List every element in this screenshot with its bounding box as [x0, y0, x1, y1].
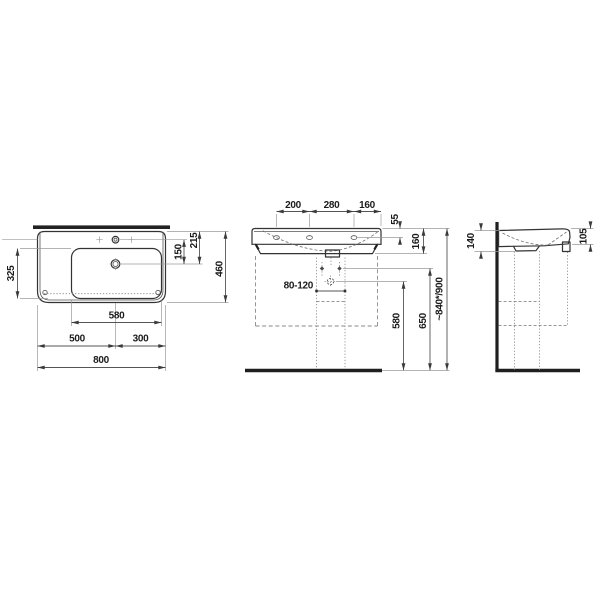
tap-hole [112, 236, 119, 243]
dim-label-200: 200 [285, 200, 302, 211]
dim-label-460: 460 [215, 260, 226, 277]
front-apron-corner-accents [256, 245, 377, 250]
dim-label-325: 325 [6, 265, 17, 282]
dim-fixing-holes-height: 650 [343, 269, 433, 371]
dim-label-650: 650 [418, 312, 429, 329]
basin-inner-lip [40, 232, 163, 300]
fixing-hole-right [156, 290, 160, 294]
basin-outer-rim [38, 232, 166, 303]
dim-label-215: 215 [189, 232, 200, 249]
bowl-outline [72, 249, 162, 299]
dim-label-500: 500 [69, 334, 86, 345]
side-bowl-curve [503, 233, 549, 245]
drain-crosshair-ticks [110, 258, 122, 270]
front-apron [256, 244, 378, 253]
front-rim-band [252, 229, 381, 245]
tap-hole-center [114, 238, 117, 241]
washbasin-technical-drawing: 325 150 215 460 580 [0, 0, 600, 600]
front-bowl-curve [263, 231, 379, 251]
dim-label-105: 105 [579, 228, 590, 245]
drain-inner [113, 261, 118, 266]
dim-bowl-depth: 325 [6, 249, 71, 299]
drawing-canvas: 325 150 215 460 580 [0, 0, 600, 600]
drain-outer [111, 260, 120, 269]
dim-trap-offset: 80-120 [284, 281, 347, 293]
dim-tap-hole-spacing: 200 280 160 [277, 200, 382, 227]
dim-front-edge-height: 105 [571, 222, 594, 252]
drain-symbol-front [325, 276, 337, 288]
dim-installation-height: ~840*/900 [435, 229, 448, 371]
dim-label-160-side: 160 [411, 233, 422, 250]
dim-label-140: 140 [466, 232, 477, 249]
dim-label-150: 150 [174, 243, 185, 260]
front-tap-hole-center [307, 236, 313, 240]
dim-height-at-wall: 140 [466, 224, 515, 259]
dim-label-280: 280 [324, 200, 341, 211]
dim-label-840-900: ~840*/900 [435, 277, 446, 321]
fixing-hole-symbol-left [320, 266, 324, 270]
dim-label-800: 800 [93, 355, 110, 366]
dim-label-160-top: 160 [359, 200, 376, 211]
dim-label-580-top: 580 [109, 311, 126, 322]
front-view: 200 280 160 [245, 200, 450, 371]
front-tap-hole-right [351, 236, 357, 240]
side-hidden-lines [499, 251, 568, 370]
wall-section-bar [33, 225, 170, 229]
dim-total-width: 800 [38, 355, 166, 368]
side-basin-profile [499, 229, 570, 247]
top-view: 325 150 215 460 580 [2, 225, 229, 371]
dim-label-300: 300 [133, 334, 150, 345]
dim-label-580-front: 580 [392, 312, 403, 329]
dim-ceramic-height: 160 [375, 229, 427, 254]
dim-label-80-120: 80-120 [284, 281, 314, 292]
side-bowl-front-curve [548, 232, 567, 245]
fixing-hole-symbol-right [337, 266, 341, 270]
trap-pipe-dotted [317, 258, 346, 371]
dim-label-55: 55 [390, 214, 401, 225]
side-view: 140 105 [466, 222, 594, 373]
